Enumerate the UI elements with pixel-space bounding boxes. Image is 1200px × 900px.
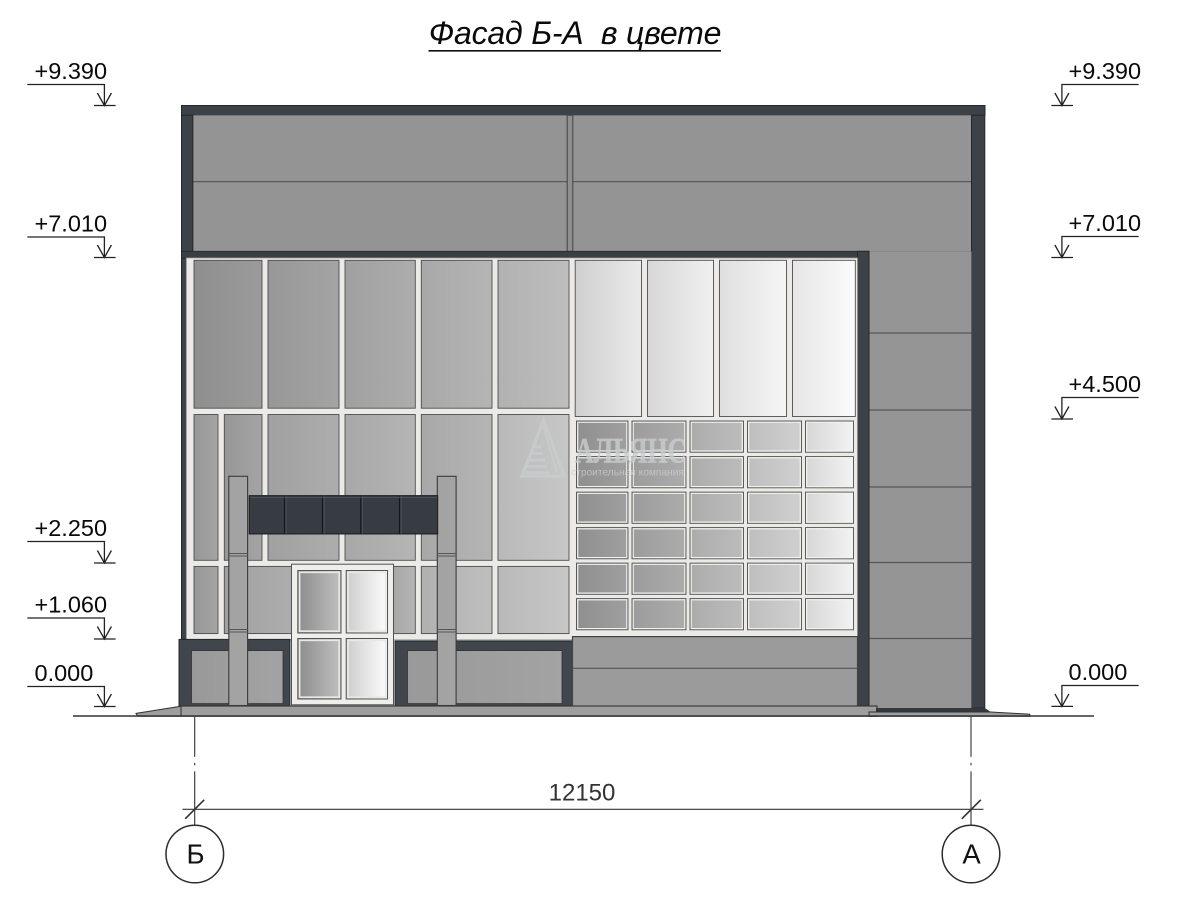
svg-text:+9.390: +9.390: [35, 58, 108, 84]
svg-text:АЛЬЯНС: АЛЬЯНС: [575, 430, 686, 470]
svg-text:12150: 12150: [549, 780, 616, 807]
svg-text:А: А: [962, 839, 981, 870]
svg-text:0.000: 0.000: [1069, 659, 1128, 685]
svg-text:Фасад Б-А в цвете: Фасад Б-А в цвете: [429, 15, 721, 51]
svg-text:Б: Б: [186, 839, 204, 870]
svg-text:+4.500: +4.500: [1069, 371, 1142, 397]
svg-text:+7.010: +7.010: [35, 211, 108, 237]
svg-text:0.000: 0.000: [35, 660, 94, 686]
svg-text:строительная компания: строительная компания: [571, 468, 684, 479]
svg-text:+9.390: +9.390: [1069, 58, 1142, 84]
svg-text:+1.060: +1.060: [35, 592, 108, 618]
svg-text:+7.010: +7.010: [1069, 210, 1142, 236]
svg-text:+2.250: +2.250: [35, 515, 108, 541]
